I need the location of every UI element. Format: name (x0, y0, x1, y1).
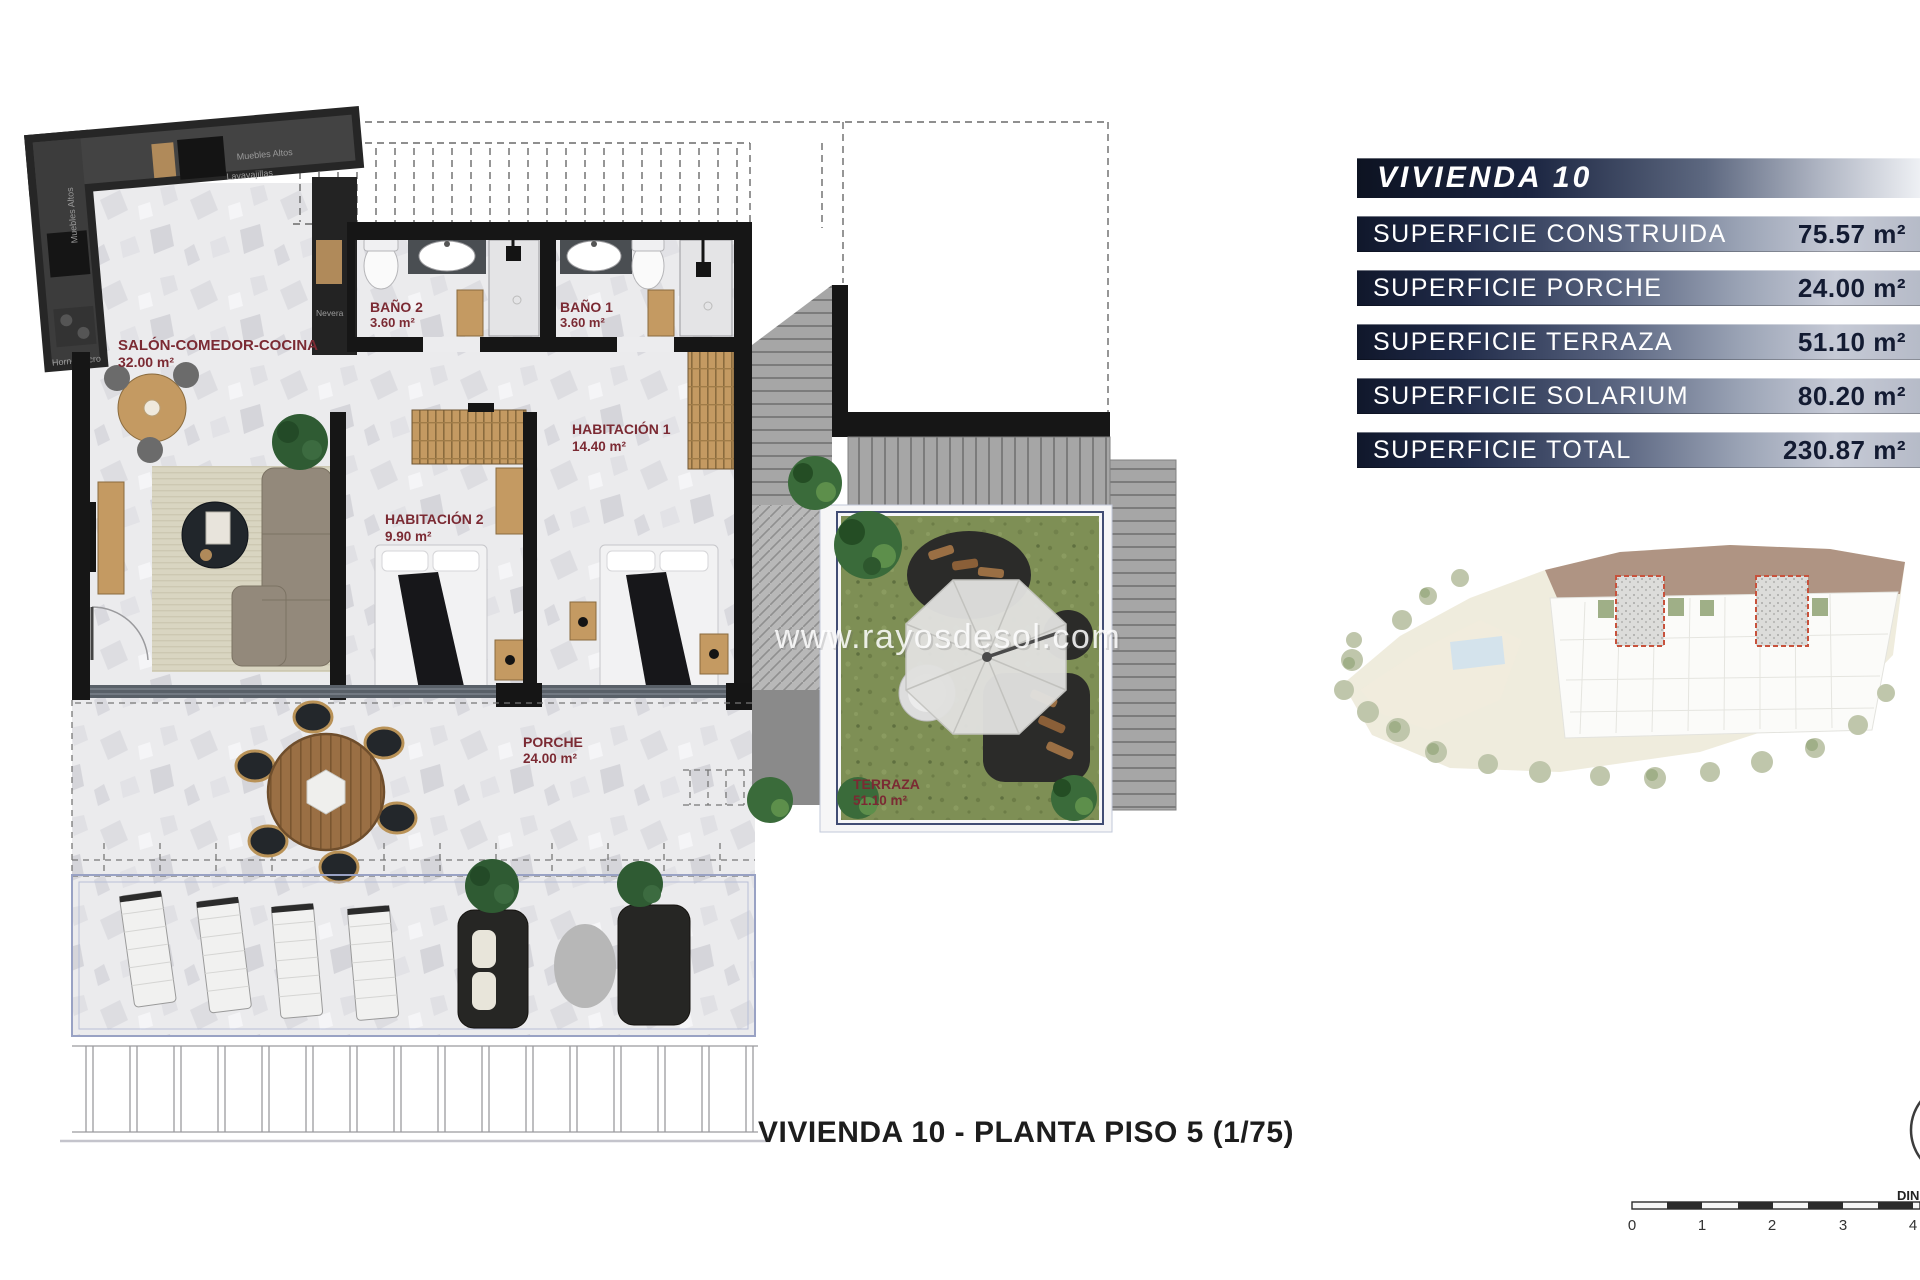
room-area-habitacion2: 9.90 m² (385, 529, 432, 544)
table-row-total: SUPERFICIE TOTAL 230.87 m² (1357, 432, 1920, 468)
row-label: SUPERFICIE TERRAZA (1373, 328, 1673, 357)
tv-sideboard (98, 482, 124, 594)
row-value: 51.10 m² (1798, 327, 1906, 358)
wardrobe (688, 345, 734, 469)
bath-cabinet (648, 290, 674, 336)
scale-tick-4: 4 (1909, 1217, 1917, 1234)
plant-icon (272, 414, 328, 470)
room-label-habitacion1: HABITACIÓN 1 (572, 420, 671, 437)
table-row: SUPERFICIE SOLARIUM 80.20 m² (1357, 378, 1920, 414)
row-label: SUPERFICIE TOTAL (1373, 436, 1632, 465)
site-highlighted-unit (1616, 576, 1664, 646)
room-area-bano2: 3.60 m² (370, 315, 415, 330)
scale-tick-1: 1 (1698, 1217, 1706, 1234)
site-highlighted-unit (1756, 576, 1808, 646)
panel-header: VIVIENDA 10 (1357, 158, 1920, 198)
terrace-table (554, 924, 616, 1008)
din-label: DIN (1897, 1188, 1919, 1203)
room-label-salon: SALÓN-COMEDOR-COCINA (118, 336, 318, 354)
railing (60, 1046, 770, 1141)
row-label: SUPERFICIE SOLARIUM (1373, 382, 1689, 411)
shower (680, 240, 732, 336)
dining-chair (137, 437, 163, 463)
room-label-terraza: TERRAZA (853, 776, 920, 792)
scale-tick-0: 0 (1628, 1217, 1636, 1234)
compass-circle (1911, 1083, 1920, 1177)
room-area-porche: 24.00 m² (523, 751, 578, 766)
surface-table: VIVIENDA 10 SUPERFICIE CONSTRUIDA 75.57 … (1357, 158, 1920, 486)
kitchen-board (151, 142, 176, 178)
table-row: SUPERFICIE CONSTRUIDA 75.57 m² (1357, 216, 1920, 252)
dining-chair (173, 362, 199, 388)
plant-icon (465, 859, 519, 913)
row-value: 80.20 m² (1798, 381, 1906, 412)
bath-cabinet (457, 290, 483, 336)
row-value: 230.87 m² (1783, 435, 1906, 466)
site-pool (1450, 636, 1505, 670)
row-label: SUPERFICIE CONSTRUIDA (1373, 220, 1727, 249)
page: Muebles Altos Lavavajillas Muebles Altos… (0, 0, 1920, 1280)
site-plan (1334, 545, 1905, 789)
watermark: www.rayosdesol.com (774, 618, 1121, 656)
room-label-bano2: BAÑO 2 (370, 298, 423, 315)
row-label: SUPERFICIE PORCHE (1373, 274, 1662, 303)
kitchen-label-nevera: Nevera (316, 308, 344, 318)
room-area-habitacion1: 14.40 m² (572, 439, 627, 454)
table-row: SUPERFICIE TERRAZA 51.10 m² (1357, 324, 1920, 360)
room-area-terraza: 51.10 m² (853, 793, 908, 808)
scale-tick-3: 3 (1839, 1217, 1847, 1234)
plan-caption: VIVIENDA 10 - PLANTA PISO 5 (1/75) (758, 1116, 1294, 1150)
bush-icon (834, 511, 902, 579)
row-value: 75.57 m² (1798, 219, 1906, 250)
room-area-bano1: 3.60 m² (560, 315, 605, 330)
row-value: 24.00 m² (1798, 273, 1906, 304)
room-area-salon: 32.00 m² (118, 354, 174, 370)
site-road (1545, 545, 1905, 600)
scale-bar: DIN 0 1 2 3 4 (1628, 1083, 1920, 1234)
bush-icon (1051, 775, 1097, 821)
dresser (496, 468, 526, 534)
wardrobe (412, 410, 526, 464)
room-label-habitacion2: HABITACIÓN 2 (385, 510, 484, 527)
scale-tick-2: 2 (1768, 1217, 1776, 1234)
bush-icon (747, 777, 793, 823)
panel-title: VIVIENDA 10 (1377, 161, 1592, 195)
kitchen-sink (177, 136, 226, 180)
bush-icon (788, 456, 842, 510)
table-row: SUPERFICIE PORCHE 24.00 m² (1357, 270, 1920, 306)
terrace-sofa (458, 859, 528, 1028)
room-label-porche: PORCHE (523, 734, 583, 750)
tv-icon (89, 502, 96, 572)
room-label-bano1: BAÑO 1 (560, 298, 613, 315)
